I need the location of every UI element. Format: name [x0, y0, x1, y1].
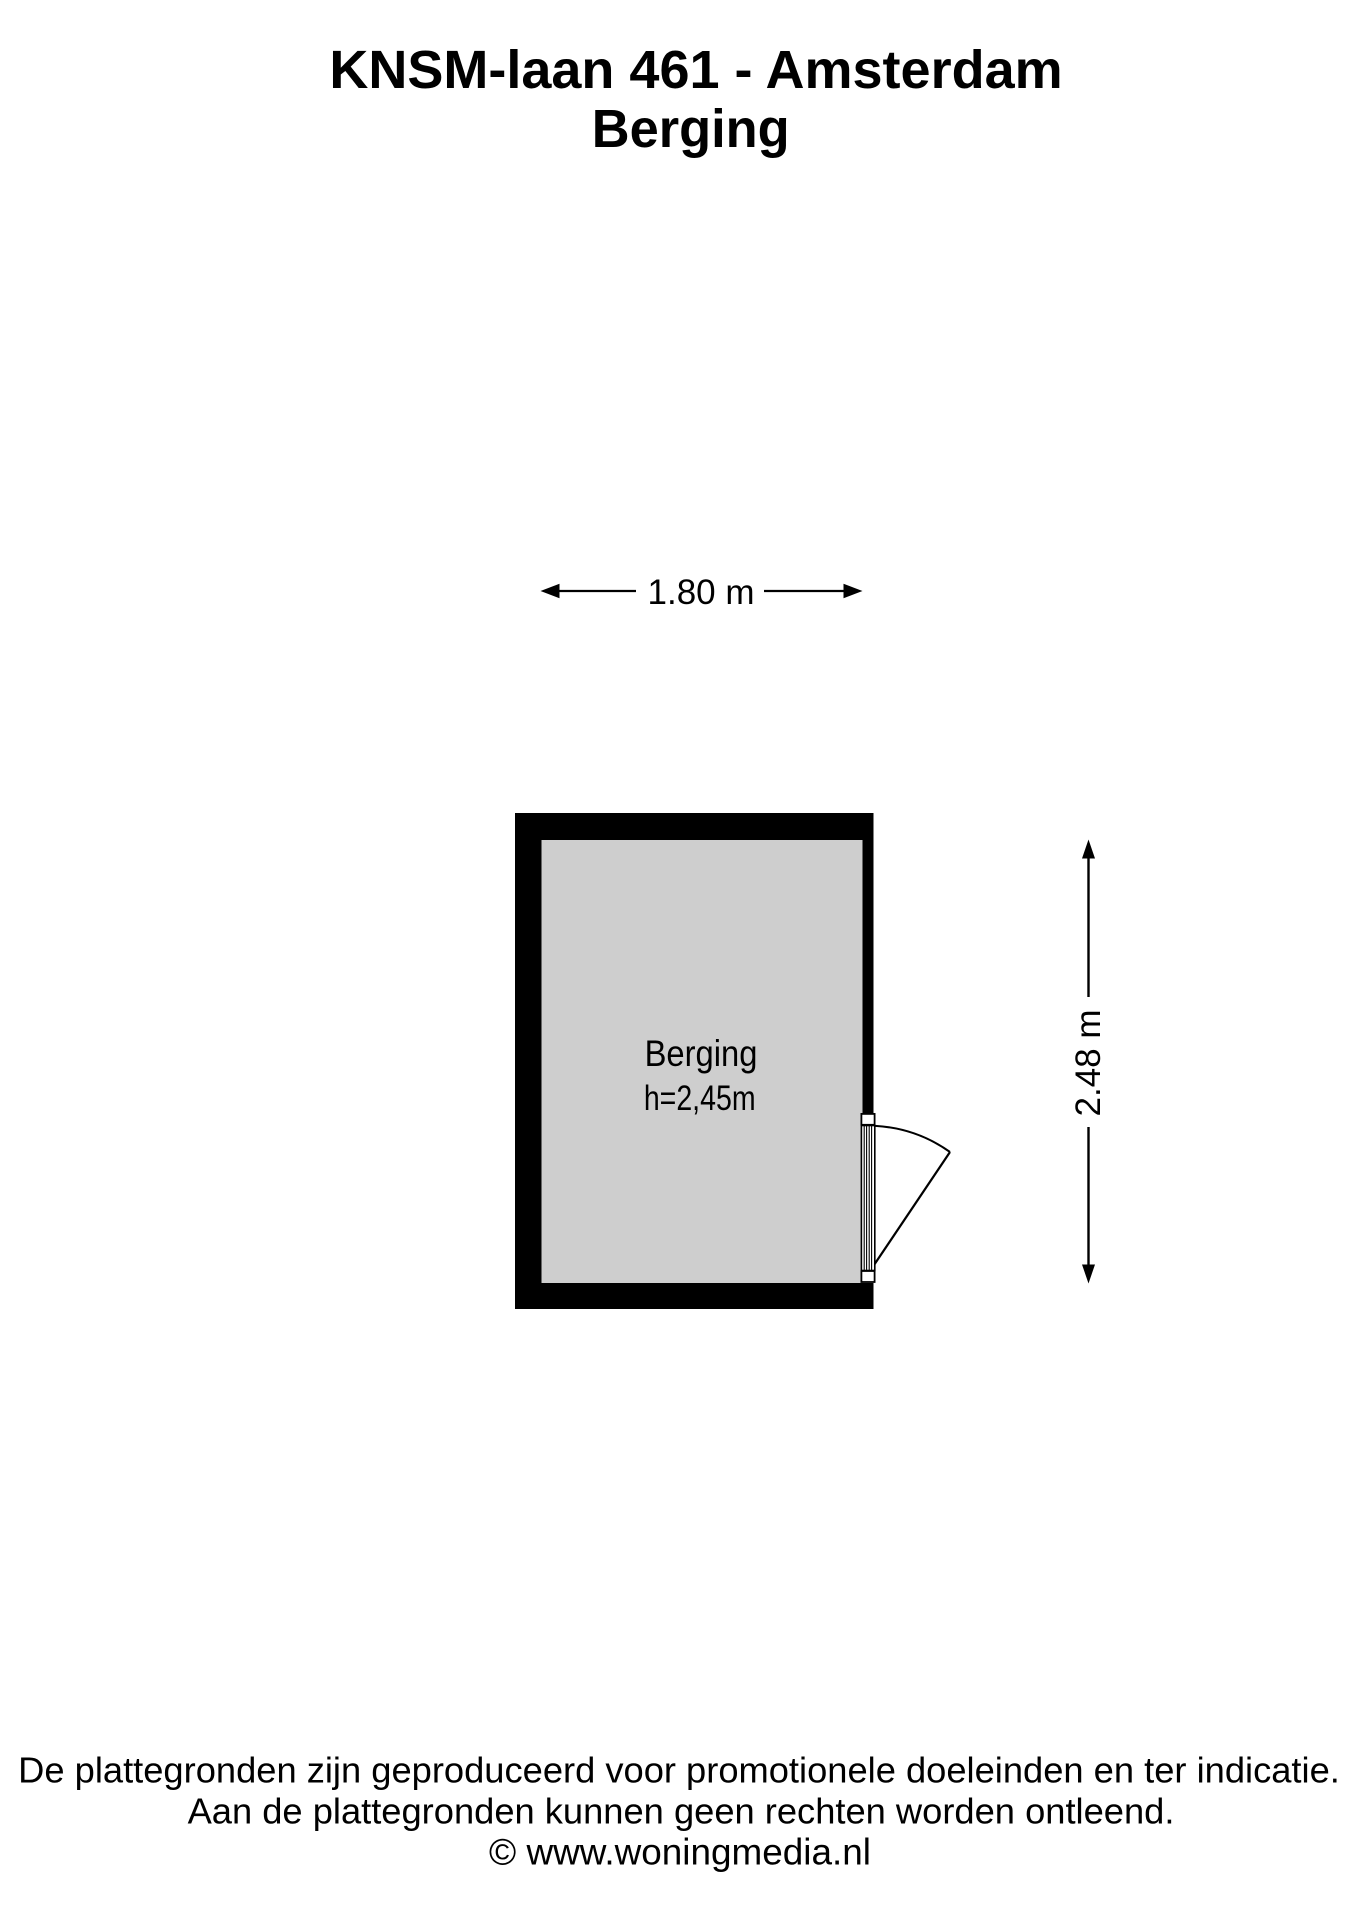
svg-text:Berging: Berging	[592, 99, 790, 159]
svg-text:2.48 m: 2.48 m	[1069, 1010, 1108, 1117]
svg-text:h=2,45m: h=2,45m	[644, 1078, 756, 1117]
svg-text:De plattegronden zijn geproduc: De plattegronden zijn geproduceerd voor …	[18, 1750, 1340, 1791]
svg-text:Berging: Berging	[645, 1033, 758, 1074]
svg-text:Aan de plattegronden kunnen ge: Aan de plattegronden kunnen geen rechten…	[188, 1791, 1175, 1832]
svg-text:KNSM-laan 461 - Amsterdam: KNSM-laan 461 - Amsterdam	[329, 40, 1062, 100]
svg-text:1.80 m: 1.80 m	[648, 573, 755, 612]
svg-text:© www.woningmedia.nl: © www.woningmedia.nl	[489, 1832, 871, 1873]
